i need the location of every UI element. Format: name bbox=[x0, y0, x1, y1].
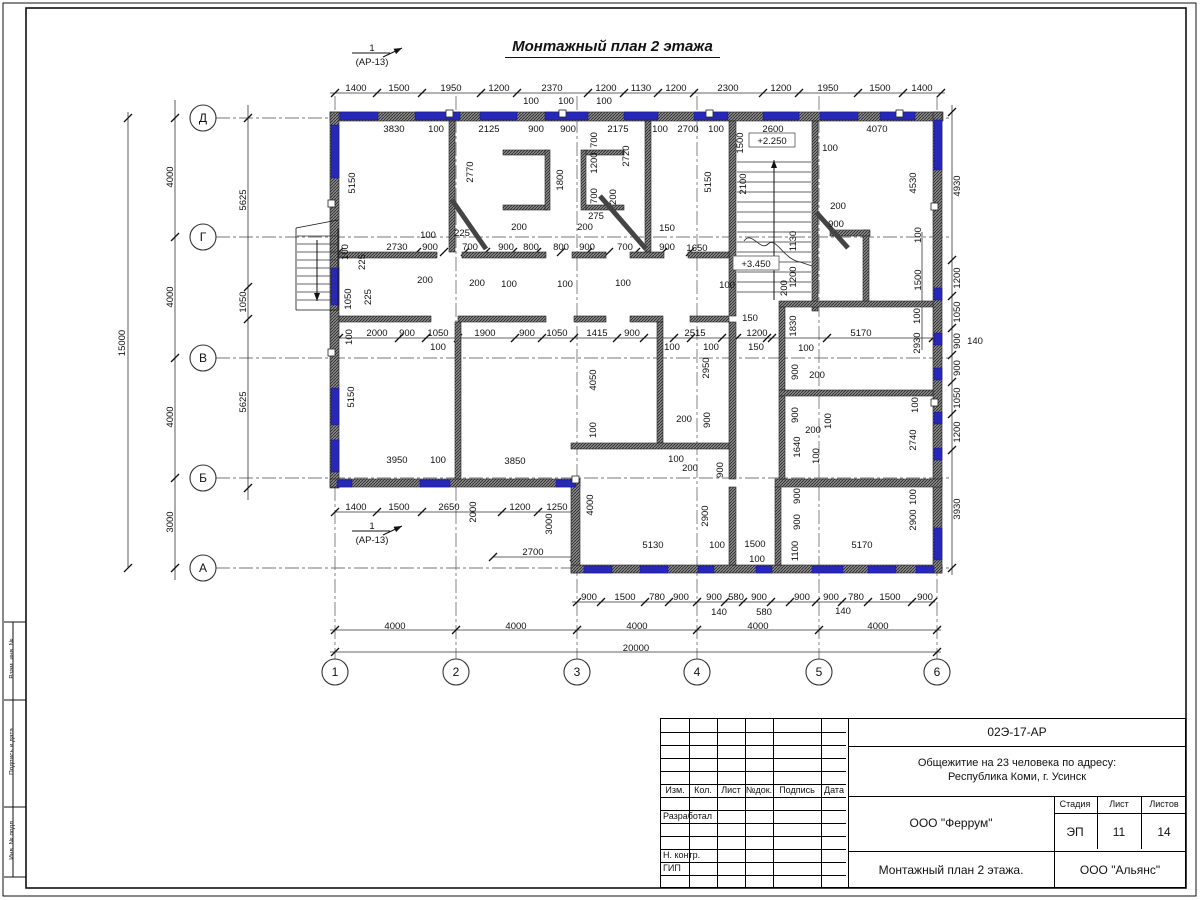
dim-label: 150 bbox=[659, 223, 675, 234]
wall bbox=[729, 322, 736, 479]
dim-label: 1200 bbox=[746, 328, 767, 339]
window bbox=[337, 480, 352, 487]
dim-label: 200 bbox=[469, 278, 485, 289]
dim-label: 1830 bbox=[788, 315, 799, 336]
dim-label: 100 bbox=[798, 343, 814, 354]
dim-label: 100 bbox=[615, 278, 631, 289]
dim-label: 1500 bbox=[735, 132, 746, 153]
tb-project-line2: Республика Коми, г. Усинск bbox=[948, 771, 1086, 783]
tb-col-list: Лист bbox=[721, 785, 741, 795]
dim-label: 900 bbox=[794, 592, 810, 603]
dim-label: 1050 bbox=[238, 291, 249, 312]
dim-label: 1200 bbox=[665, 83, 686, 94]
dim-label: 780 bbox=[848, 592, 864, 603]
dim-label: 1500 bbox=[388, 83, 409, 94]
dim-label: 1050 bbox=[546, 328, 567, 339]
tb-row-gip: ГИП bbox=[663, 863, 681, 873]
dim-label: 900 bbox=[498, 242, 514, 253]
window bbox=[868, 566, 896, 573]
dim-label: 1200 bbox=[589, 152, 600, 173]
dim-label: 900 bbox=[952, 333, 963, 349]
dim-label: 200 bbox=[779, 280, 790, 296]
dim-label: 200 bbox=[682, 463, 698, 474]
wall bbox=[630, 316, 663, 322]
wall bbox=[503, 205, 547, 210]
wall bbox=[458, 316, 546, 322]
tb-line bbox=[661, 758, 846, 759]
dim-label: 150 bbox=[742, 313, 758, 324]
dim-label: 200 bbox=[805, 425, 821, 436]
wall bbox=[645, 121, 651, 252]
wall-node bbox=[559, 110, 566, 117]
level-mark: +3.450 bbox=[741, 259, 770, 270]
wall bbox=[455, 322, 461, 479]
wall bbox=[775, 487, 781, 565]
window bbox=[934, 120, 942, 170]
tb-line bbox=[661, 862, 846, 863]
dim-label: 900 bbox=[706, 592, 722, 603]
dim-label: 1050 bbox=[343, 288, 354, 309]
dim-label: 1400 bbox=[345, 502, 366, 513]
axis-label-3: 3 bbox=[574, 665, 581, 679]
dim-label: 700 bbox=[462, 242, 478, 253]
dim-label: (АР-13) bbox=[356, 535, 389, 546]
dim-label: 900 bbox=[528, 124, 544, 135]
dim-label: 140 bbox=[835, 606, 851, 617]
axis-label-4: 4 bbox=[694, 665, 701, 679]
title-block: Изм. Кол. Лист №док. Подпись Дата Разраб… bbox=[660, 718, 1186, 888]
wall-node bbox=[931, 399, 938, 406]
dim-label: 3950 bbox=[386, 455, 407, 466]
dim-label: 5170 bbox=[850, 328, 871, 339]
tb-sheet-label: Лист bbox=[1109, 799, 1129, 809]
dim-label: 100 bbox=[811, 448, 822, 464]
dim-label: 5150 bbox=[703, 171, 714, 192]
dim-label: 2900 bbox=[700, 505, 711, 526]
window bbox=[584, 566, 612, 573]
tb-line bbox=[661, 745, 846, 746]
dim-label: 1 bbox=[369, 43, 374, 54]
dim-label: 1950 bbox=[817, 83, 838, 94]
dim-label: 2300 bbox=[717, 83, 738, 94]
dim-label: 2125 bbox=[478, 124, 499, 135]
dim-label: 1640 bbox=[792, 436, 803, 457]
axis-label-Г: Г bbox=[200, 230, 207, 244]
window bbox=[934, 528, 942, 560]
dim-label: 100 bbox=[344, 329, 355, 345]
dim-label: 100 bbox=[596, 96, 612, 107]
wall bbox=[330, 479, 580, 487]
dim-label: 900 bbox=[751, 592, 767, 603]
dim-label: 5130 bbox=[642, 540, 663, 551]
dim-label: 100 bbox=[420, 230, 436, 241]
dim-label: 1050 bbox=[952, 387, 963, 408]
dim-label: 2740 bbox=[908, 429, 919, 450]
dim-label: 100 bbox=[588, 422, 599, 438]
dim-label: 1 bbox=[369, 521, 374, 532]
tb-line bbox=[848, 796, 1185, 797]
drawing-sheet: ДГВБА123456 1400150019501200237012001130… bbox=[0, 0, 1200, 900]
tb-line bbox=[1054, 813, 1185, 814]
dim-label: 1400 bbox=[911, 83, 932, 94]
dim-label: 200 bbox=[809, 370, 825, 381]
dim-label: 100 bbox=[664, 342, 680, 353]
window bbox=[624, 112, 658, 120]
dim-label: 900 bbox=[399, 328, 415, 339]
dim-label: 800 bbox=[523, 242, 539, 253]
tb-sheets-label: Листов bbox=[1149, 799, 1178, 809]
dim-label: 100 bbox=[652, 124, 668, 135]
dim-label: 580 bbox=[756, 607, 772, 618]
wall bbox=[503, 150, 547, 155]
tb-line bbox=[661, 797, 846, 798]
dim-label: 5150 bbox=[347, 172, 358, 193]
wall-node bbox=[706, 110, 713, 117]
window bbox=[698, 566, 714, 573]
dim-label: 100 bbox=[430, 342, 446, 353]
window bbox=[756, 566, 772, 573]
tb-org: ООО "Феррум" bbox=[910, 816, 993, 830]
dim-label: 2700 bbox=[522, 547, 543, 558]
dim-label: 100 bbox=[913, 227, 924, 243]
dim-label: 225 bbox=[357, 254, 368, 270]
axis-label-1: 1 bbox=[332, 665, 339, 679]
wall bbox=[571, 443, 733, 449]
dim-label: 2770 bbox=[465, 161, 476, 182]
dim-label: 5625 bbox=[238, 391, 249, 412]
window bbox=[340, 112, 378, 120]
window bbox=[812, 566, 843, 573]
walls bbox=[330, 112, 943, 573]
wall-node bbox=[896, 110, 903, 117]
dim-label: 900 bbox=[790, 364, 801, 380]
dim-label: 100 bbox=[910, 397, 921, 413]
wall-node bbox=[931, 203, 938, 210]
tb-sheet-value: 11 bbox=[1113, 825, 1125, 839]
dim-label: 4000 bbox=[747, 621, 768, 632]
dim-label: 100 bbox=[340, 244, 351, 260]
wall bbox=[729, 487, 736, 565]
tb-col-ndok: №док. bbox=[746, 785, 772, 795]
dim-label: 20000 bbox=[623, 643, 649, 654]
wall-node bbox=[328, 349, 335, 356]
tb-line bbox=[848, 851, 1185, 852]
dim-label: 225 bbox=[363, 289, 374, 305]
dim-label: 100 bbox=[557, 279, 573, 290]
dim-label: 900 bbox=[790, 407, 801, 423]
dim-label: 900 bbox=[581, 592, 597, 603]
dim-label: 3000 bbox=[165, 511, 176, 532]
window bbox=[763, 112, 799, 120]
wall bbox=[863, 230, 869, 305]
dim-label: 900 bbox=[792, 488, 803, 504]
wall bbox=[779, 307, 785, 390]
level-mark: +2.250 bbox=[757, 136, 786, 147]
dim-label: 150 bbox=[748, 342, 764, 353]
tb-col-izm: Изм. bbox=[665, 785, 684, 795]
dim-label: 900 bbox=[792, 514, 803, 530]
window bbox=[545, 112, 588, 120]
stamp-vzam: Взам. инв. № bbox=[9, 619, 16, 699]
tb-col-podpis: Подпись bbox=[779, 785, 815, 795]
wall bbox=[779, 396, 785, 479]
wall-node bbox=[572, 476, 579, 483]
window bbox=[916, 566, 934, 573]
dim-label: 4000 bbox=[384, 621, 405, 632]
wall bbox=[574, 316, 606, 322]
wall bbox=[339, 316, 431, 322]
dim-label: 100 bbox=[558, 96, 574, 107]
dim-label: 4070 bbox=[866, 124, 887, 135]
tb-line bbox=[848, 746, 1185, 747]
dim-label: 200 bbox=[417, 275, 433, 286]
dim-label: 1100 bbox=[790, 541, 801, 561]
page-title: Монтажный план 2 этажа bbox=[505, 38, 720, 58]
dim-label: 100 bbox=[428, 124, 444, 135]
tb-line bbox=[661, 875, 846, 876]
window bbox=[934, 368, 942, 380]
window bbox=[934, 333, 942, 345]
dim-label: 1200 bbox=[770, 83, 791, 94]
dim-label: 100 bbox=[703, 342, 719, 353]
dim-label: 4000 bbox=[165, 286, 176, 307]
dim-label: 900 bbox=[560, 124, 576, 135]
dim-label: 1500 bbox=[614, 592, 635, 603]
tb-stage-label: Стадия bbox=[1060, 799, 1091, 809]
dim-label: 1130 bbox=[631, 83, 651, 94]
dim-label: 100 bbox=[501, 279, 517, 290]
dim-label: 2100 bbox=[738, 173, 749, 194]
dim-label: 225 bbox=[454, 228, 470, 239]
axis-label-В: В bbox=[199, 351, 207, 365]
dim-label: 580 bbox=[728, 592, 744, 603]
dim-label: 2650 bbox=[438, 502, 459, 513]
tb-line bbox=[661, 823, 846, 824]
dim-label: 900 bbox=[952, 360, 963, 376]
window bbox=[331, 440, 339, 472]
dim-label: 4000 bbox=[165, 166, 176, 187]
dim-label: 2720 bbox=[621, 145, 632, 166]
dim-label: 1900 bbox=[474, 328, 495, 339]
dim-label: 900 bbox=[422, 242, 438, 253]
tb-line bbox=[661, 771, 846, 772]
window bbox=[640, 566, 668, 573]
dim-label: 1050 bbox=[427, 328, 448, 339]
dim-label: 100 bbox=[822, 143, 838, 154]
dim-label: 2000 bbox=[468, 501, 479, 522]
dim-label: 1200 bbox=[952, 421, 963, 442]
tb-row-nkontr: Н. контр. bbox=[663, 850, 700, 860]
dim-label: 900 bbox=[917, 592, 933, 603]
dim-label: 1650 bbox=[686, 243, 707, 254]
dim-label: 1250 bbox=[546, 502, 567, 513]
dim-label: 4000 bbox=[505, 621, 526, 632]
axis-label-5: 5 bbox=[816, 665, 823, 679]
dim-label: 200 bbox=[577, 222, 593, 233]
dim-label: 1400 bbox=[345, 83, 366, 94]
stamp-inv: Инв. № подл. bbox=[9, 800, 16, 880]
dim-label: 5170 bbox=[851, 540, 872, 551]
tb-org2: ООО "Альянс" bbox=[1080, 863, 1160, 877]
dim-label: 780 bbox=[649, 592, 665, 603]
axis-label-Д: Д bbox=[199, 111, 207, 125]
wall bbox=[657, 322, 663, 447]
dim-label: 100 bbox=[709, 540, 725, 551]
dim-label: 1950 bbox=[440, 83, 461, 94]
dim-label: 4000 bbox=[165, 406, 176, 427]
dim-label: 2900 bbox=[908, 509, 919, 530]
dim-label: 275 bbox=[588, 211, 604, 222]
dim-label: 3000 bbox=[544, 513, 555, 534]
dim-label: 900 bbox=[828, 219, 844, 230]
dim-label: 5625 bbox=[238, 189, 249, 210]
dim-label: 200 bbox=[608, 189, 619, 205]
dim-label: 140 bbox=[711, 607, 727, 618]
tb-line bbox=[1141, 796, 1142, 849]
dim-label: 700 bbox=[589, 132, 600, 148]
wall bbox=[571, 479, 580, 573]
dim-label: 2175 bbox=[607, 124, 628, 135]
dim-label: 1130 bbox=[788, 231, 799, 251]
dim-label: 900 bbox=[659, 242, 675, 253]
dim-label: 2370 bbox=[541, 83, 562, 94]
window bbox=[331, 388, 339, 425]
window bbox=[934, 448, 942, 460]
dim-label: 4000 bbox=[585, 494, 596, 515]
dim-label: 100 bbox=[908, 489, 919, 505]
dim-label: 3830 bbox=[383, 124, 404, 135]
wall bbox=[775, 479, 942, 487]
dim-label: 100 bbox=[823, 413, 834, 429]
dim-label: 900 bbox=[702, 412, 713, 428]
dim-tick bbox=[440, 248, 448, 256]
dim-label: 200 bbox=[830, 201, 846, 212]
window-openings bbox=[331, 112, 942, 573]
wall-node bbox=[446, 110, 453, 117]
tb-stage-value: ЭП bbox=[1066, 825, 1083, 839]
tb-row-razrabotal: Разработал bbox=[663, 811, 712, 821]
dim-label: 1500 bbox=[913, 269, 924, 290]
wall bbox=[545, 150, 550, 210]
wall bbox=[779, 301, 933, 307]
dim-label: 800 bbox=[553, 242, 569, 253]
tb-line bbox=[661, 732, 846, 733]
dim-label: 1800 bbox=[555, 169, 566, 190]
tb-line bbox=[1097, 796, 1098, 849]
window bbox=[331, 125, 339, 178]
wall-node bbox=[328, 200, 335, 207]
dim-label: 2930 bbox=[912, 332, 923, 353]
dim-label: 1500 bbox=[879, 592, 900, 603]
dim-label: 2515 bbox=[684, 328, 705, 339]
dim-label: 700 bbox=[589, 188, 600, 204]
dim-label: 100 bbox=[749, 554, 765, 565]
window bbox=[480, 112, 517, 120]
dim-label: 4050 bbox=[588, 369, 599, 390]
dim-label: 100 bbox=[430, 455, 446, 466]
tb-drawing-name: Монтажный план 2 этажа. bbox=[879, 863, 1024, 877]
dimension-labels: 1400150019501200237012001130120023001200… bbox=[117, 43, 983, 654]
axis-label-2: 2 bbox=[453, 665, 460, 679]
wall bbox=[779, 390, 933, 396]
dim-label: 4000 bbox=[626, 621, 647, 632]
dim-label: 15000 bbox=[117, 330, 128, 356]
dim-label: 100 bbox=[912, 308, 923, 324]
dim-label: 3930 bbox=[952, 498, 963, 519]
dim-label: 900 bbox=[519, 328, 535, 339]
dim-label: 900 bbox=[673, 592, 689, 603]
dim-label: 1200 bbox=[509, 502, 530, 513]
axis-label-Б: Б bbox=[199, 471, 207, 485]
wall bbox=[690, 316, 729, 322]
dim-label: 3850 bbox=[504, 456, 525, 467]
dim-label: 200 bbox=[676, 414, 692, 425]
dim-label: 1200 bbox=[952, 267, 963, 288]
tb-line bbox=[1054, 796, 1055, 887]
wall bbox=[581, 150, 586, 210]
dim-label: 2000 bbox=[366, 328, 387, 339]
dim-label: (АР-13) bbox=[356, 57, 389, 68]
tb-sheets-value: 14 bbox=[1157, 825, 1170, 839]
dim-label: 2950 bbox=[701, 357, 712, 378]
dim-label: 1200 bbox=[595, 83, 616, 94]
dim-label: 1050 bbox=[952, 301, 963, 322]
dim-label: 100 bbox=[523, 96, 539, 107]
window bbox=[934, 412, 942, 424]
dim-label: 900 bbox=[823, 592, 839, 603]
dim-label: 100 bbox=[719, 280, 735, 291]
dim-label: 140 bbox=[967, 336, 983, 347]
dim-label: 1500 bbox=[388, 502, 409, 513]
tb-project-line1: Общежитие на 23 человека по адресу: bbox=[918, 757, 1116, 769]
dim-label: 2700 bbox=[677, 124, 698, 135]
tb-col-data: Дата bbox=[824, 785, 844, 795]
tb-line bbox=[661, 836, 846, 837]
axis-label-А: А bbox=[199, 561, 207, 575]
dim-label: 1415 bbox=[586, 328, 607, 339]
dim-label: 200 bbox=[511, 222, 527, 233]
dim-label: 100 bbox=[708, 124, 724, 135]
tb-doc-code: 02Э-17-АР bbox=[987, 725, 1046, 739]
tb-line bbox=[848, 719, 849, 887]
dim-label: 4930 bbox=[952, 175, 963, 196]
window bbox=[820, 112, 858, 120]
dim-label: 4530 bbox=[908, 172, 919, 193]
dim-label: 2730 bbox=[386, 242, 407, 253]
dim-label: 1500 bbox=[744, 539, 765, 550]
tb-col-kol: Кол. bbox=[694, 785, 712, 795]
dim-label: 1500 bbox=[869, 83, 890, 94]
dim-label: 900 bbox=[624, 328, 640, 339]
dim-label: 5150 bbox=[346, 386, 357, 407]
dim-label: 4000 bbox=[867, 621, 888, 632]
dim-label: 1200 bbox=[488, 83, 509, 94]
dim-label: 700 bbox=[617, 242, 633, 253]
dim-label: 900 bbox=[715, 462, 726, 478]
window bbox=[420, 480, 450, 487]
window bbox=[934, 288, 942, 300]
axis-label-6: 6 bbox=[934, 665, 941, 679]
stamp-podpis: Подпись и дата bbox=[9, 712, 16, 792]
dim-label: 900 bbox=[579, 242, 595, 253]
